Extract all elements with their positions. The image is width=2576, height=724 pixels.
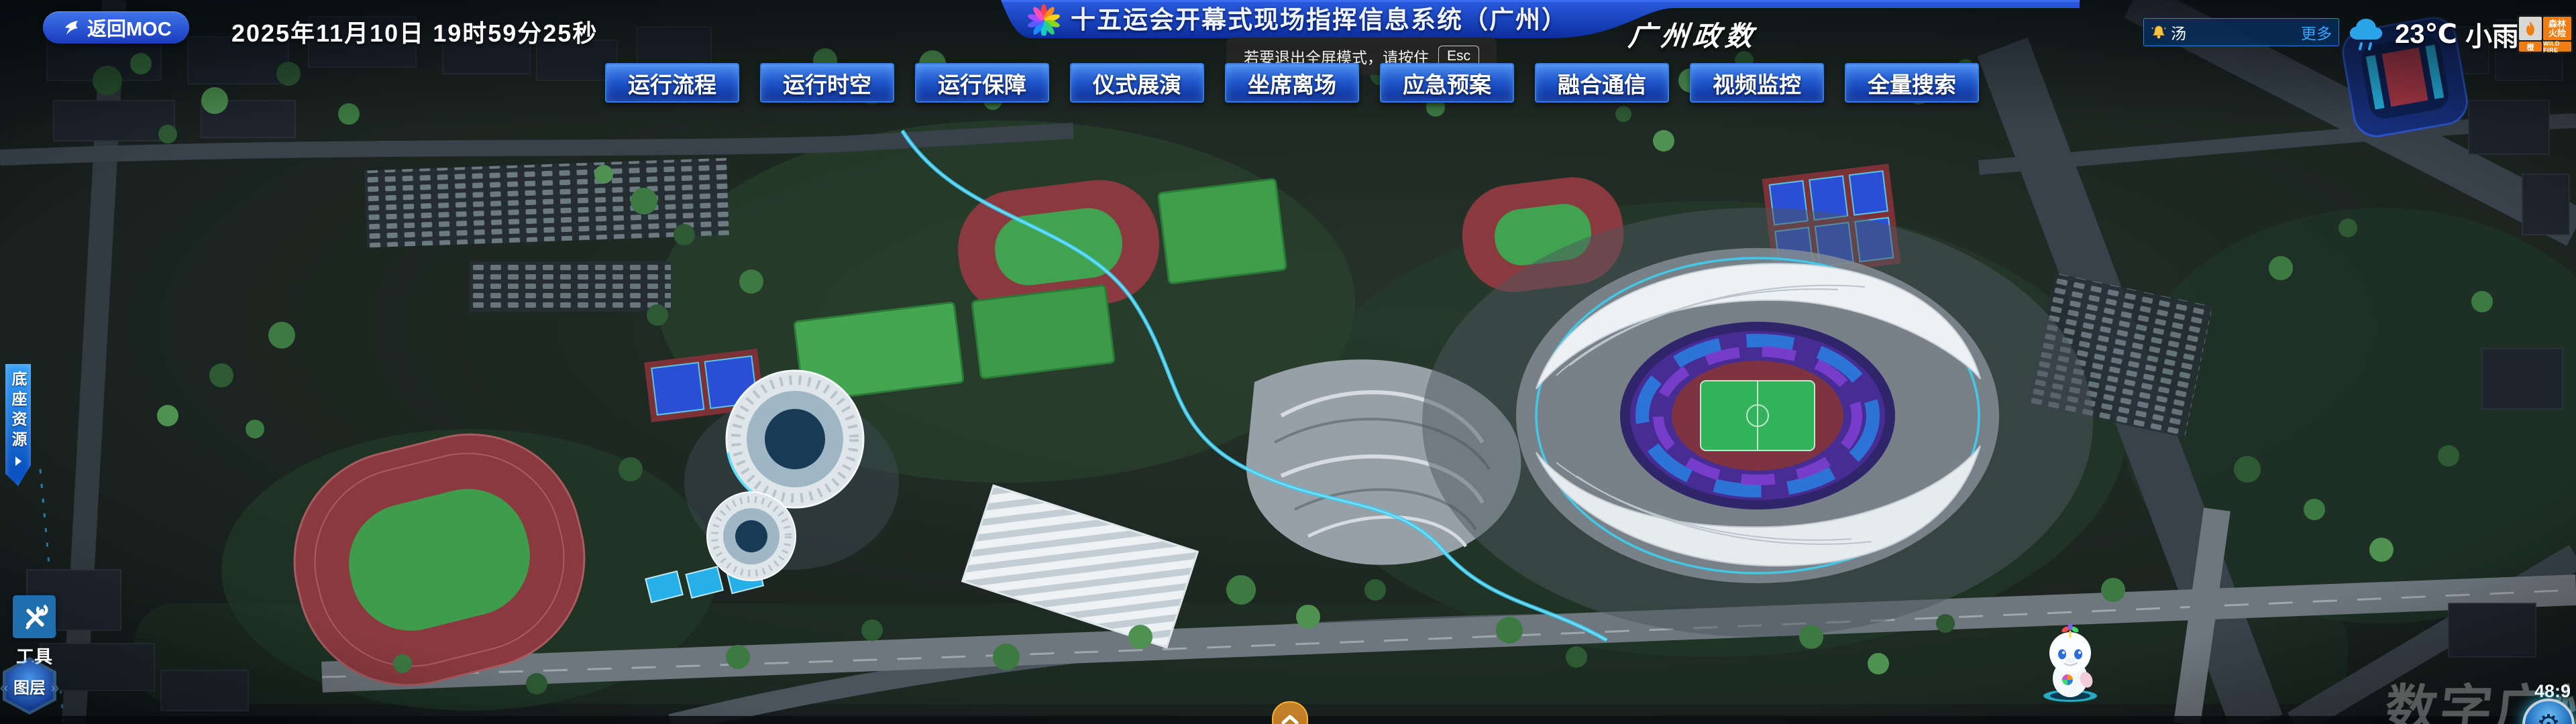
ticker-message: 汤: [2171, 21, 2301, 44]
map-canvas[interactable]: [0, 0, 2576, 724]
bell-icon: [2151, 24, 2167, 40]
page-title: 十五运会开幕式现场指挥信息系统（广州）: [1071, 5, 1580, 36]
weather-temp: 23℃: [2395, 19, 2457, 50]
back-to-moc-button[interactable]: 返回MOC: [43, 11, 189, 44]
command-dashboard: 十五运会开幕式现场指挥信息系统（广州） 返回MOC 2025年11月10日 19…: [0, 0, 2576, 724]
back-button-label: 返回MOC: [87, 13, 172, 42]
gear-icon: ⚙: [2536, 709, 2561, 724]
fire-badge-name-line1: 森林: [2548, 19, 2566, 29]
org-name: 广州政数: [1627, 13, 1760, 54]
weather-widget: 23℃ 小雨: [2345, 15, 2519, 54]
base-resources-tab[interactable]: 底座资源: [5, 364, 31, 486]
current-datetime: 2025年11月10日 19时59分25秒: [231, 14, 598, 49]
fire-badge-en: WILD FIRE: [2543, 42, 2571, 52]
flame-icon: [2519, 17, 2542, 40]
back-arrow-icon: [60, 17, 80, 38]
nav-operation-support[interactable]: 运行保障: [915, 63, 1049, 103]
nav-ceremony-performance[interactable]: 仪式展演: [1070, 63, 1204, 103]
fire-badge-level: 橙: [2519, 42, 2542, 52]
forest-fire-risk-badge: 森林 火险 橙 WILD FIRE: [2517, 15, 2573, 54]
triangle-right-icon: [15, 457, 21, 466]
base-resources-label: 底座资源: [7, 371, 30, 451]
nav-operation-spacetime[interactable]: 运行时空: [760, 63, 894, 103]
fire-badge-name: 森林 火险: [2543, 17, 2571, 40]
nav-video-surveillance[interactable]: 视频监控: [1690, 63, 1824, 103]
nav-seat-departure[interactable]: 坐席离场: [1225, 63, 1359, 103]
nav-emergency-plan[interactable]: 应急预案: [1380, 63, 1514, 103]
chevron-left-icon: ‹‹: [0, 681, 8, 695]
ticker-more-link[interactable]: 更多: [2301, 21, 2332, 44]
fire-badge-name-line2: 火险: [2548, 29, 2566, 38]
notification-ticker: 汤 更多: [2143, 18, 2339, 46]
nav-operation-flow[interactable]: 运行流程: [605, 63, 739, 103]
main-nav: 运行流程 运行时空 运行保障 仪式展演 坐席离场 应急预案 融合通信 视频监控 …: [605, 63, 1979, 103]
aerial-3d-map: [0, 0, 2576, 724]
games-flower-logo-icon: [1028, 3, 1060, 36]
rain-cloud-icon: [2345, 15, 2387, 53]
wrench-screwdriver-icon: [13, 595, 56, 638]
nav-converged-comms[interactable]: 融合通信: [1535, 63, 1669, 103]
chevron-up-icon: [1281, 713, 1299, 724]
chevron-right-icon: ››: [51, 681, 59, 695]
nav-global-search[interactable]: 全量搜索: [1845, 63, 1979, 103]
games-mascot: [2039, 622, 2101, 703]
weather-condition: 小雨: [2465, 15, 2519, 54]
layers-button[interactable]: 图层 ‹‹ ››: [3, 657, 56, 715]
